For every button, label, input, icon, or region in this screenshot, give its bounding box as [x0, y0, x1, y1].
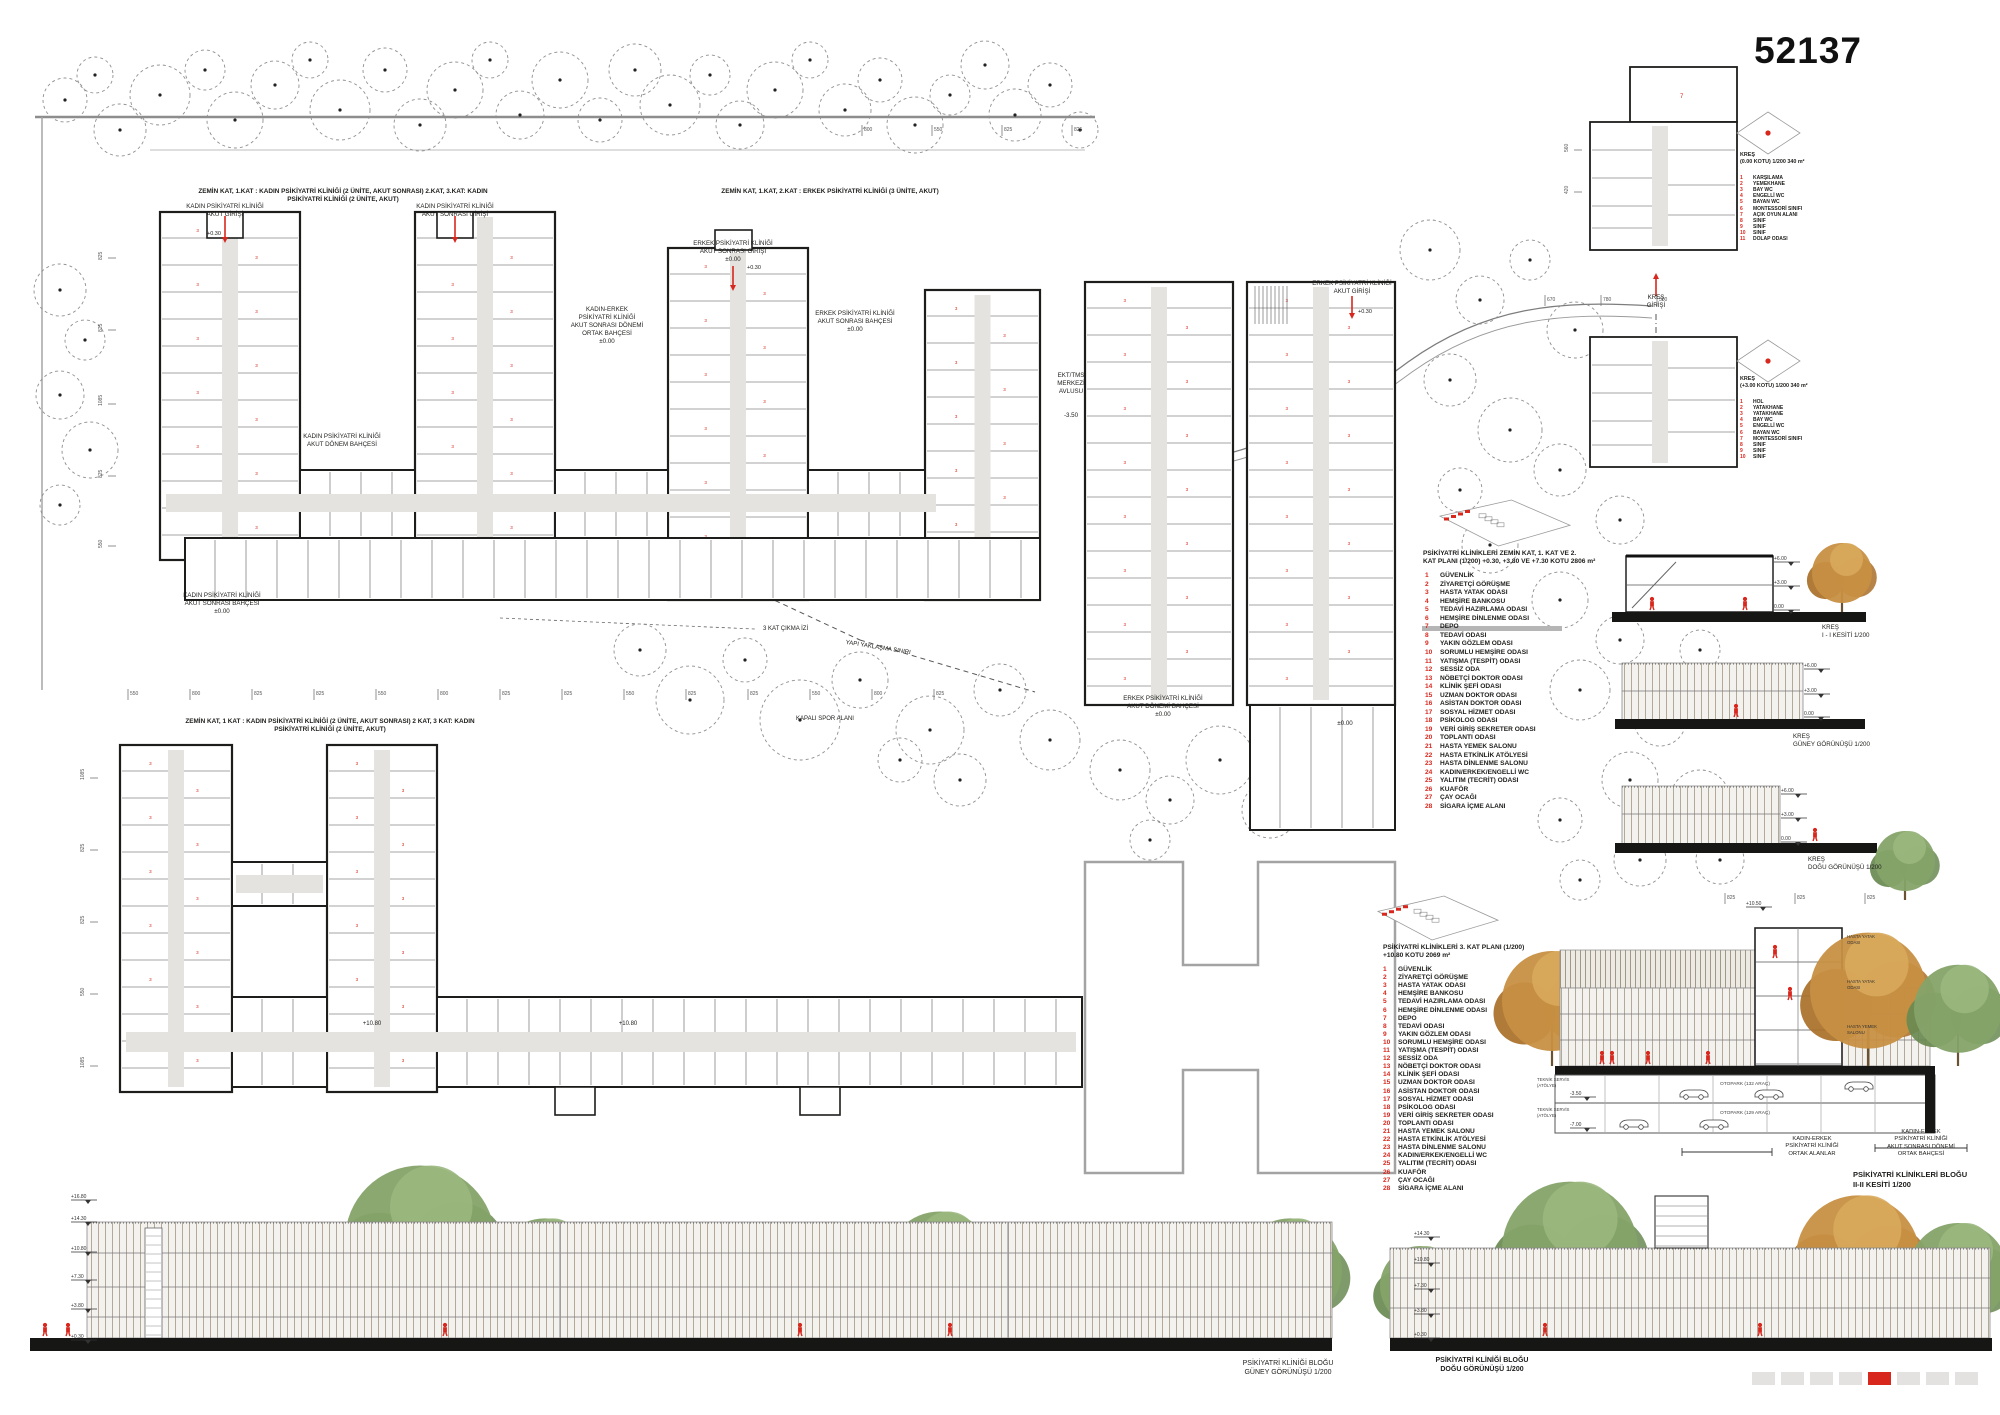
svg-text:825: 825	[98, 323, 104, 332]
svg-text:-7.00: -7.00	[1570, 1122, 1582, 1128]
svg-text:1085: 1085	[98, 395, 104, 406]
svg-text:825: 825	[1867, 895, 1876, 901]
page-square	[1955, 1372, 1978, 1385]
svg-text:1085: 1085	[80, 1057, 86, 1068]
svg-text:825: 825	[1004, 127, 1013, 133]
page-square	[1926, 1372, 1949, 1385]
svg-text:825: 825	[688, 691, 697, 697]
svg-text:+3.00: +3.00	[1804, 688, 1817, 694]
site-plan-drawing: 3333333333333333333333333333333333333333…	[0, 0, 2000, 1415]
svg-text:550: 550	[98, 539, 104, 548]
svg-text:550: 550	[934, 127, 943, 133]
svg-text:825: 825	[80, 915, 86, 924]
page-square	[1897, 1372, 1920, 1385]
svg-text:+3.80: +3.80	[1414, 1308, 1427, 1314]
competition-board: 3333333333333333333333333333333333333333…	[0, 0, 2000, 1415]
svg-text:0.00: 0.00	[1781, 836, 1791, 842]
page-square	[1810, 1372, 1833, 1385]
svg-text:800: 800	[874, 691, 883, 697]
svg-text:+14.30: +14.30	[71, 1216, 87, 1222]
svg-text:800: 800	[192, 691, 201, 697]
svg-text:825: 825	[564, 691, 573, 697]
svg-text:+14.30: +14.30	[1414, 1231, 1430, 1237]
svg-text:0.00: 0.00	[1804, 711, 1814, 717]
svg-text:825: 825	[1797, 895, 1806, 901]
svg-text:1085: 1085	[80, 769, 86, 780]
svg-text:+6.00: +6.00	[1774, 556, 1787, 562]
svg-text:825: 825	[316, 691, 325, 697]
svg-text:550: 550	[130, 691, 139, 697]
page-square	[1868, 1372, 1891, 1385]
svg-text:825: 825	[1074, 127, 1083, 133]
svg-text:+6.00: +6.00	[1781, 788, 1794, 794]
svg-text:+10.80: +10.80	[1414, 1257, 1430, 1263]
svg-text:825: 825	[80, 843, 86, 852]
svg-text:825: 825	[936, 691, 945, 697]
svg-text:+7.30: +7.30	[71, 1274, 84, 1280]
svg-text:825: 825	[254, 691, 263, 697]
page-square	[1781, 1372, 1804, 1385]
svg-text:550: 550	[80, 987, 86, 996]
svg-text:825: 825	[502, 691, 511, 697]
svg-text:0.00: 0.00	[1774, 604, 1784, 610]
svg-text:825: 825	[1727, 895, 1736, 901]
svg-text:+7.30: +7.30	[1414, 1283, 1427, 1289]
svg-text:500: 500	[1659, 297, 1668, 303]
svg-text:800: 800	[864, 127, 873, 133]
svg-text:800: 800	[440, 691, 449, 697]
svg-text:+6.00: +6.00	[1804, 663, 1817, 669]
svg-text:420: 420	[1564, 185, 1570, 194]
page-square	[1839, 1372, 1862, 1385]
svg-text:+0.30: +0.30	[1414, 1332, 1427, 1338]
svg-text:560: 560	[1564, 143, 1570, 152]
svg-text:+10.80: +10.80	[71, 1246, 87, 1252]
svg-text:550: 550	[378, 691, 387, 697]
svg-text:-3.50: -3.50	[1570, 1091, 1582, 1097]
svg-text:+3.00: +3.00	[1781, 812, 1794, 818]
svg-text:825: 825	[750, 691, 759, 697]
svg-text:550: 550	[626, 691, 635, 697]
svg-text:+3.80: +3.80	[71, 1303, 84, 1309]
page-square	[1752, 1372, 1775, 1385]
svg-text:825: 825	[98, 251, 104, 260]
svg-text:670: 670	[1547, 297, 1556, 303]
svg-text:+10.50: +10.50	[1746, 901, 1762, 907]
svg-text:550: 550	[812, 691, 821, 697]
svg-text:+16.80: +16.80	[71, 1194, 87, 1200]
svg-text:+3.00: +3.00	[1774, 580, 1787, 586]
svg-text:825: 825	[98, 469, 104, 478]
svg-text:780: 780	[1603, 297, 1612, 303]
svg-text:+0.30: +0.30	[71, 1334, 84, 1340]
page-indicator	[1752, 1372, 1978, 1385]
